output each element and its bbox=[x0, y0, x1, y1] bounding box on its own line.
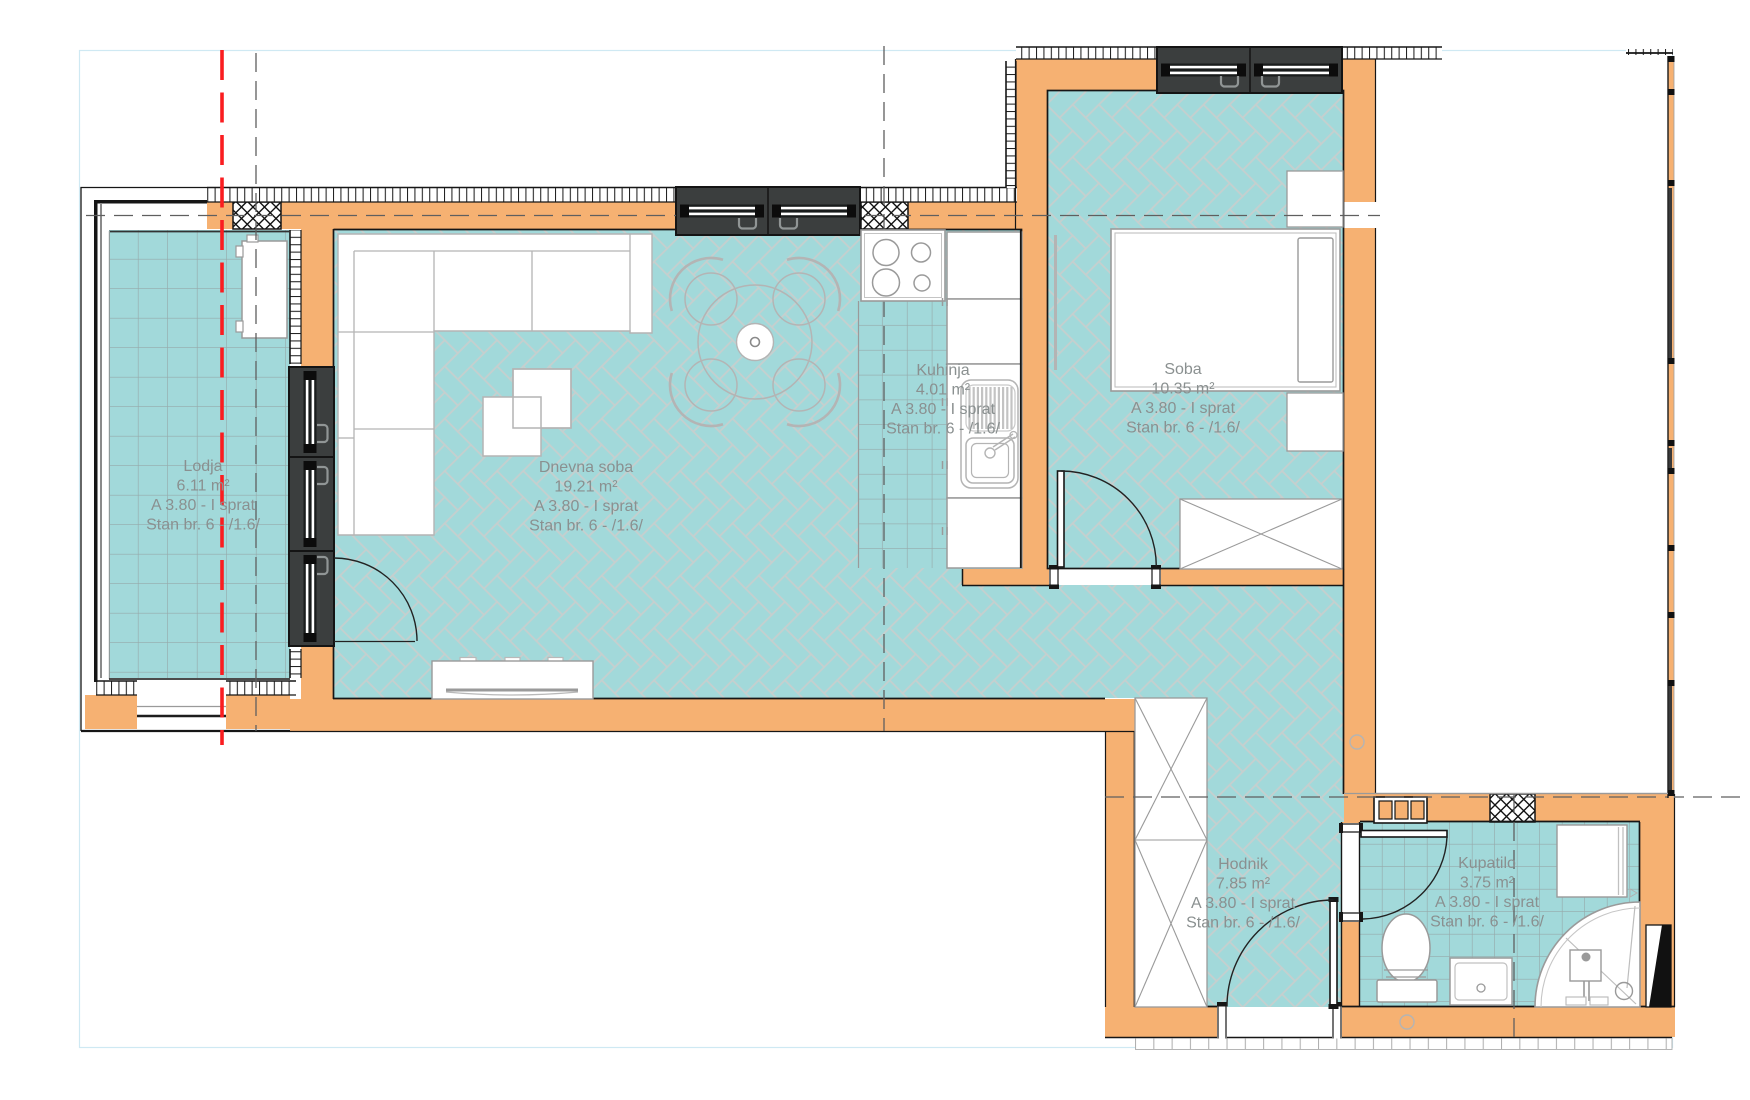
svg-text:Soba: Soba bbox=[1164, 361, 1201, 378]
svg-text:Stan br. 6 - /1.6/: Stan br. 6 - /1.6/ bbox=[1126, 420, 1240, 437]
svg-text:A 3.80 - I sprat: A 3.80 - I sprat bbox=[151, 497, 256, 514]
svg-text:6.11 m²: 6.11 m² bbox=[176, 478, 230, 495]
svg-text:A 3.80 - I sprat: A 3.80 - I sprat bbox=[1191, 895, 1296, 912]
svg-text:Stan br. 6 - /1.6/: Stan br. 6 - /1.6/ bbox=[529, 518, 643, 535]
svg-text:Kupatilo: Kupatilo bbox=[1458, 855, 1516, 872]
svg-text:A 3.80 - I sprat: A 3.80 - I sprat bbox=[891, 401, 996, 418]
svg-text:Hodnik: Hodnik bbox=[1218, 856, 1269, 873]
svg-text:Stan br. 6 - /1.6/: Stan br. 6 - /1.6/ bbox=[1186, 915, 1300, 932]
svg-text:Dnevna soba: Dnevna soba bbox=[539, 459, 633, 476]
svg-text:3.75 m²: 3.75 m² bbox=[1460, 875, 1515, 892]
svg-text:7.85 m²: 7.85 m² bbox=[1216, 876, 1271, 893]
svg-text:A 3.80 - I sprat: A 3.80 - I sprat bbox=[1435, 894, 1540, 911]
svg-text:4.01 m²: 4.01 m² bbox=[916, 382, 971, 399]
svg-text:Stan br. 6 - /1.6/: Stan br. 6 - /1.6/ bbox=[886, 421, 1000, 438]
svg-text:Stan br. 6 - /1.6/: Stan br. 6 - /1.6/ bbox=[146, 517, 260, 534]
svg-text:Kuhinja: Kuhinja bbox=[916, 362, 969, 379]
svg-text:19.21 m²: 19.21 m² bbox=[554, 479, 618, 496]
svg-text:A 3.80 - I sprat: A 3.80 - I sprat bbox=[1131, 400, 1236, 417]
svg-text:Stan br. 6 - /1.6/: Stan br. 6 - /1.6/ bbox=[1430, 914, 1544, 931]
svg-text:Lodja: Lodja bbox=[183, 458, 222, 475]
svg-text:A 3.80 - I sprat: A 3.80 - I sprat bbox=[534, 498, 639, 515]
svg-text:10.35 m²: 10.35 m² bbox=[1151, 381, 1215, 398]
